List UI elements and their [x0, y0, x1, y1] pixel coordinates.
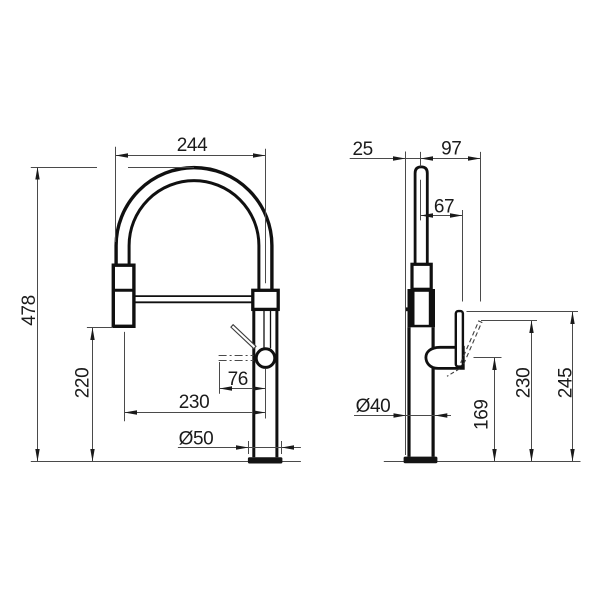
svg-text:Ø50: Ø50	[179, 428, 214, 449]
svg-text:230: 230	[179, 392, 210, 413]
svg-text:25: 25	[353, 139, 373, 160]
svg-text:245: 245	[556, 368, 577, 399]
svg-text:67: 67	[434, 197, 454, 218]
svg-text:220: 220	[73, 368, 94, 399]
svg-text:76: 76	[228, 369, 248, 390]
svg-text:230: 230	[514, 368, 535, 399]
svg-text:169: 169	[472, 399, 493, 430]
svg-text:244: 244	[177, 135, 208, 156]
svg-text:97: 97	[441, 138, 461, 159]
svg-text:Ø40: Ø40	[356, 396, 391, 417]
svg-text:478: 478	[19, 295, 40, 326]
